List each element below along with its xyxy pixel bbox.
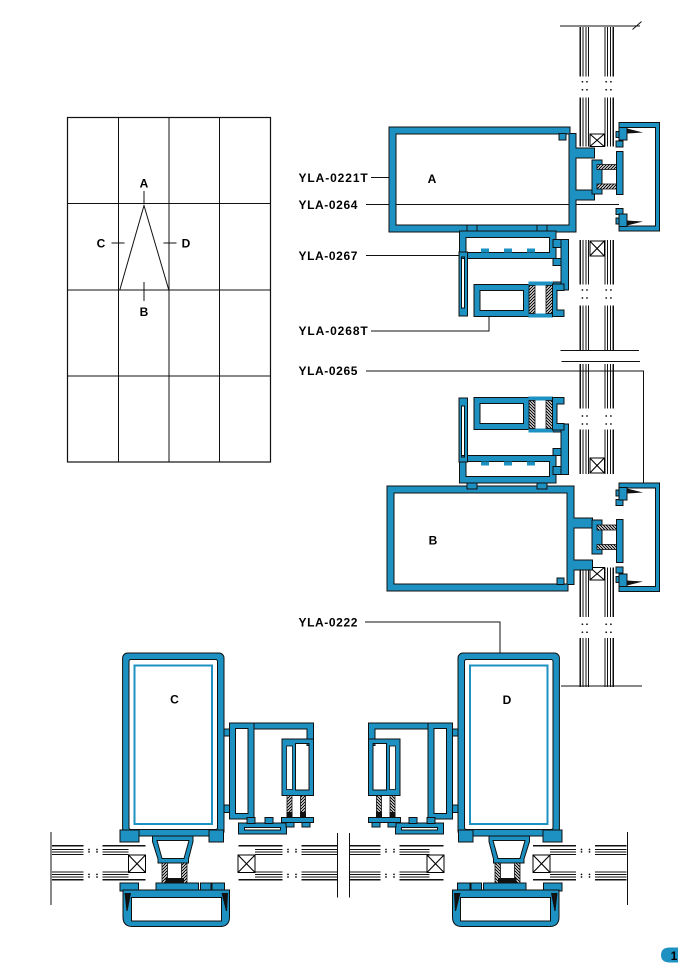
svg-text:C: C bbox=[170, 693, 179, 707]
svg-text:B: B bbox=[429, 534, 438, 548]
svg-text:A: A bbox=[140, 177, 149, 191]
svg-text:B: B bbox=[140, 305, 149, 319]
svg-text:1: 1 bbox=[671, 949, 678, 963]
svg-text:YLA-0268T: YLA-0268T bbox=[299, 324, 369, 338]
svg-text:A: A bbox=[428, 172, 437, 186]
svg-text:YLA-0267: YLA-0267 bbox=[299, 249, 359, 263]
svg-text:YLA-0221T: YLA-0221T bbox=[299, 171, 369, 185]
svg-text:C: C bbox=[97, 237, 106, 251]
svg-text:YLA-0264: YLA-0264 bbox=[299, 198, 359, 212]
svg-text:YLA-0222: YLA-0222 bbox=[299, 615, 359, 629]
svg-text:YLA-0265: YLA-0265 bbox=[299, 364, 359, 378]
svg-text:D: D bbox=[503, 693, 512, 707]
svg-text:D: D bbox=[182, 237, 191, 251]
